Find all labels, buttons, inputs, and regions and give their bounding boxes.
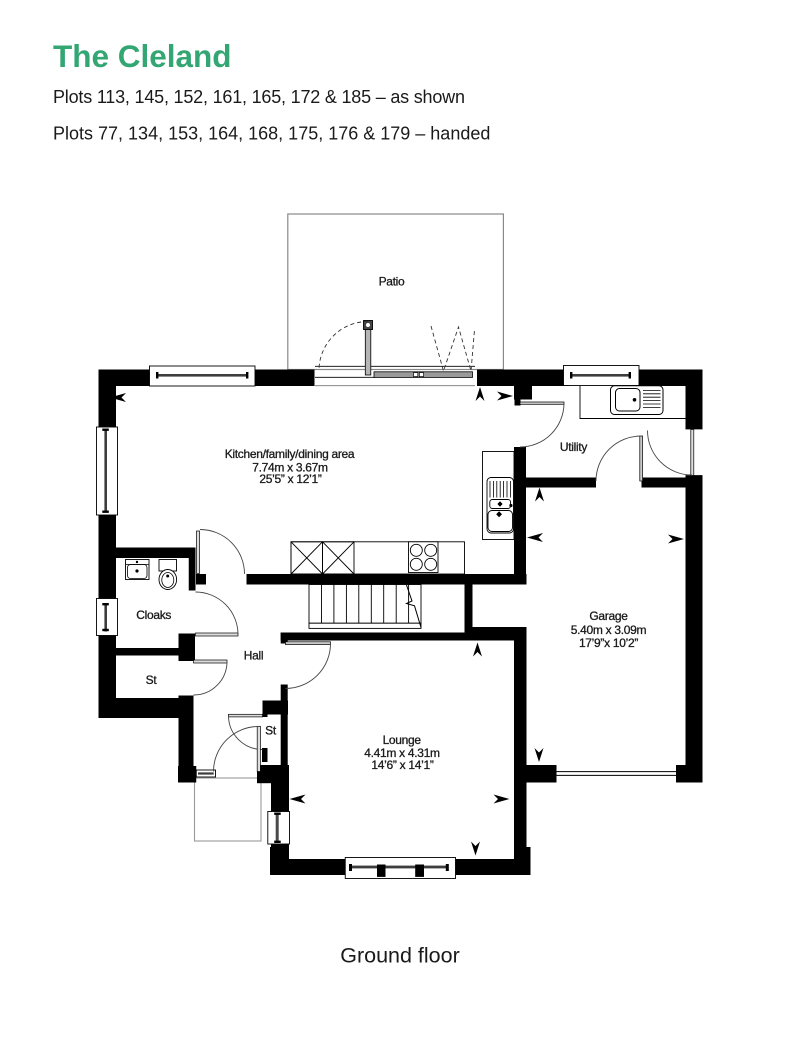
svg-text:Garage: Garage [589,609,628,623]
svg-text:Lounge: Lounge [383,733,422,747]
svg-text:Plots 77, 134, 153, 164, 168,: Plots 77, 134, 153, 164, 168, 175, 176 &… [53,124,490,144]
svg-text:The Cleland: The Cleland [53,38,232,74]
svg-text:Kitchen/family/dining area: Kitchen/family/dining area [225,447,355,461]
svg-text:Plots 113, 145, 152, 161, 165,: Plots 113, 145, 152, 161, 165, 172 & 185… [53,87,465,107]
svg-text:Ground floor: Ground floor [340,944,460,968]
svg-text:St: St [146,673,158,687]
svg-text:Cloaks: Cloaks [136,608,171,622]
svg-text:5.40m x 3.09m: 5.40m x 3.09m [571,623,647,637]
svg-text:Hall: Hall [244,649,263,663]
svg-text:Patio: Patio [379,275,405,289]
svg-text:25’5” x 12’1”: 25’5” x 12’1” [259,472,321,486]
svg-text:St: St [265,724,277,738]
svg-text:Utility: Utility [560,440,588,454]
svg-text:17’9”x 10’2”: 17’9”x 10’2” [579,636,638,650]
svg-text:14’6” x 14’1”: 14’6” x 14’1” [371,758,433,772]
